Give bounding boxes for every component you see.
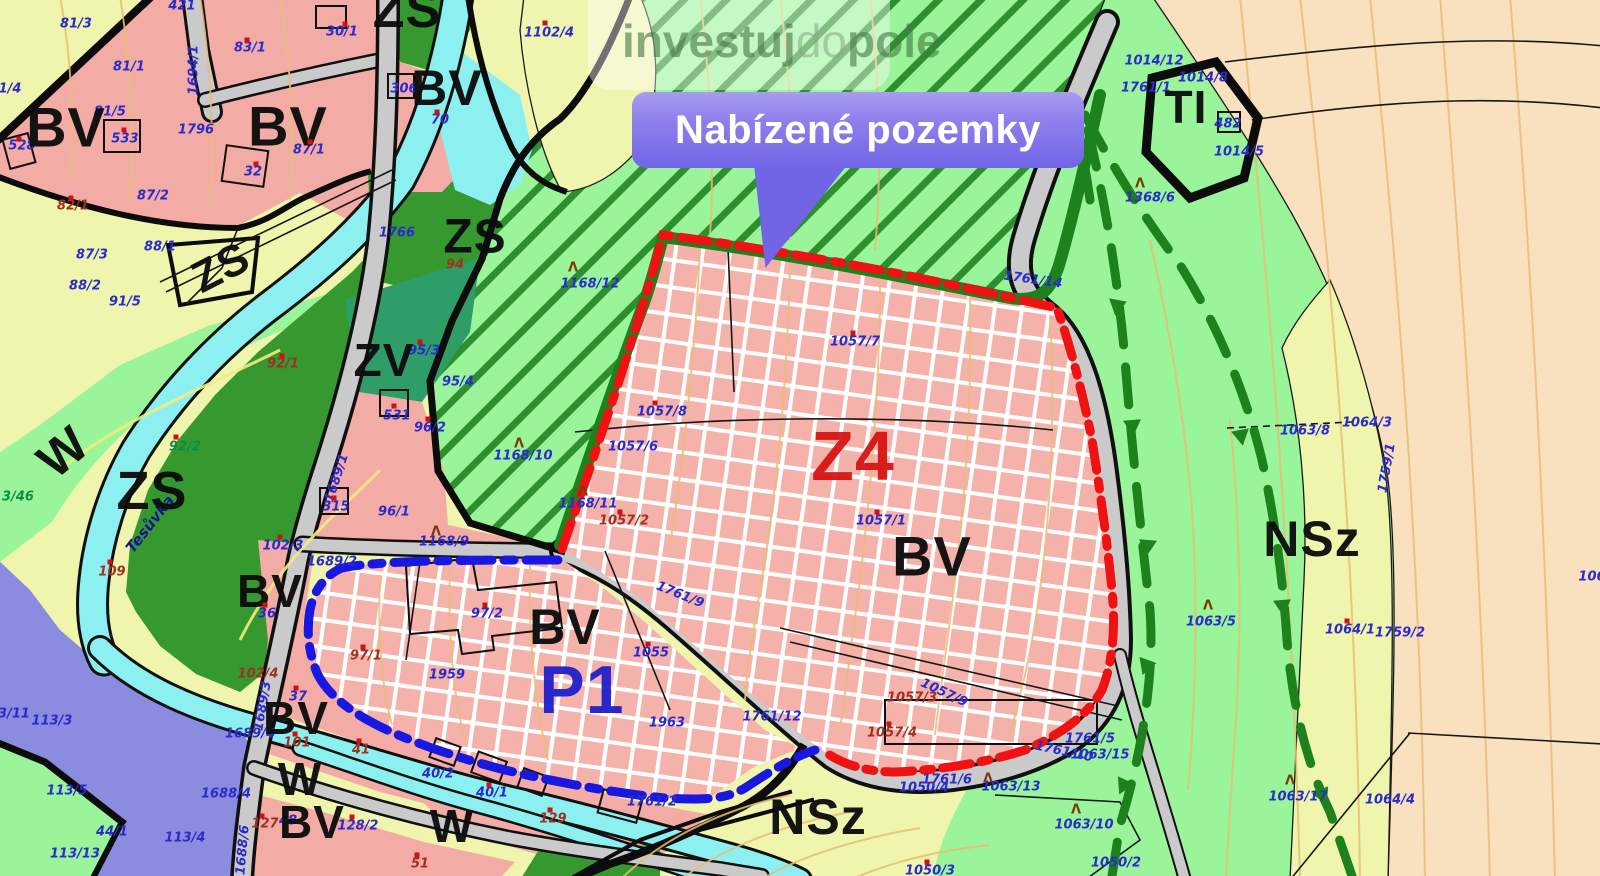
offered-plots-banner[interactable]: Nabízené pozemky <box>632 92 1084 168</box>
banner-title: Nabízené pozemky <box>675 108 1041 153</box>
watermark-investujdopole: investujdopole <box>588 0 890 90</box>
map-viewport[interactable]: 42181/381/11/481/552853383/130/1179687/1… <box>0 0 1600 876</box>
watermark-text: investujdopole <box>622 14 942 68</box>
